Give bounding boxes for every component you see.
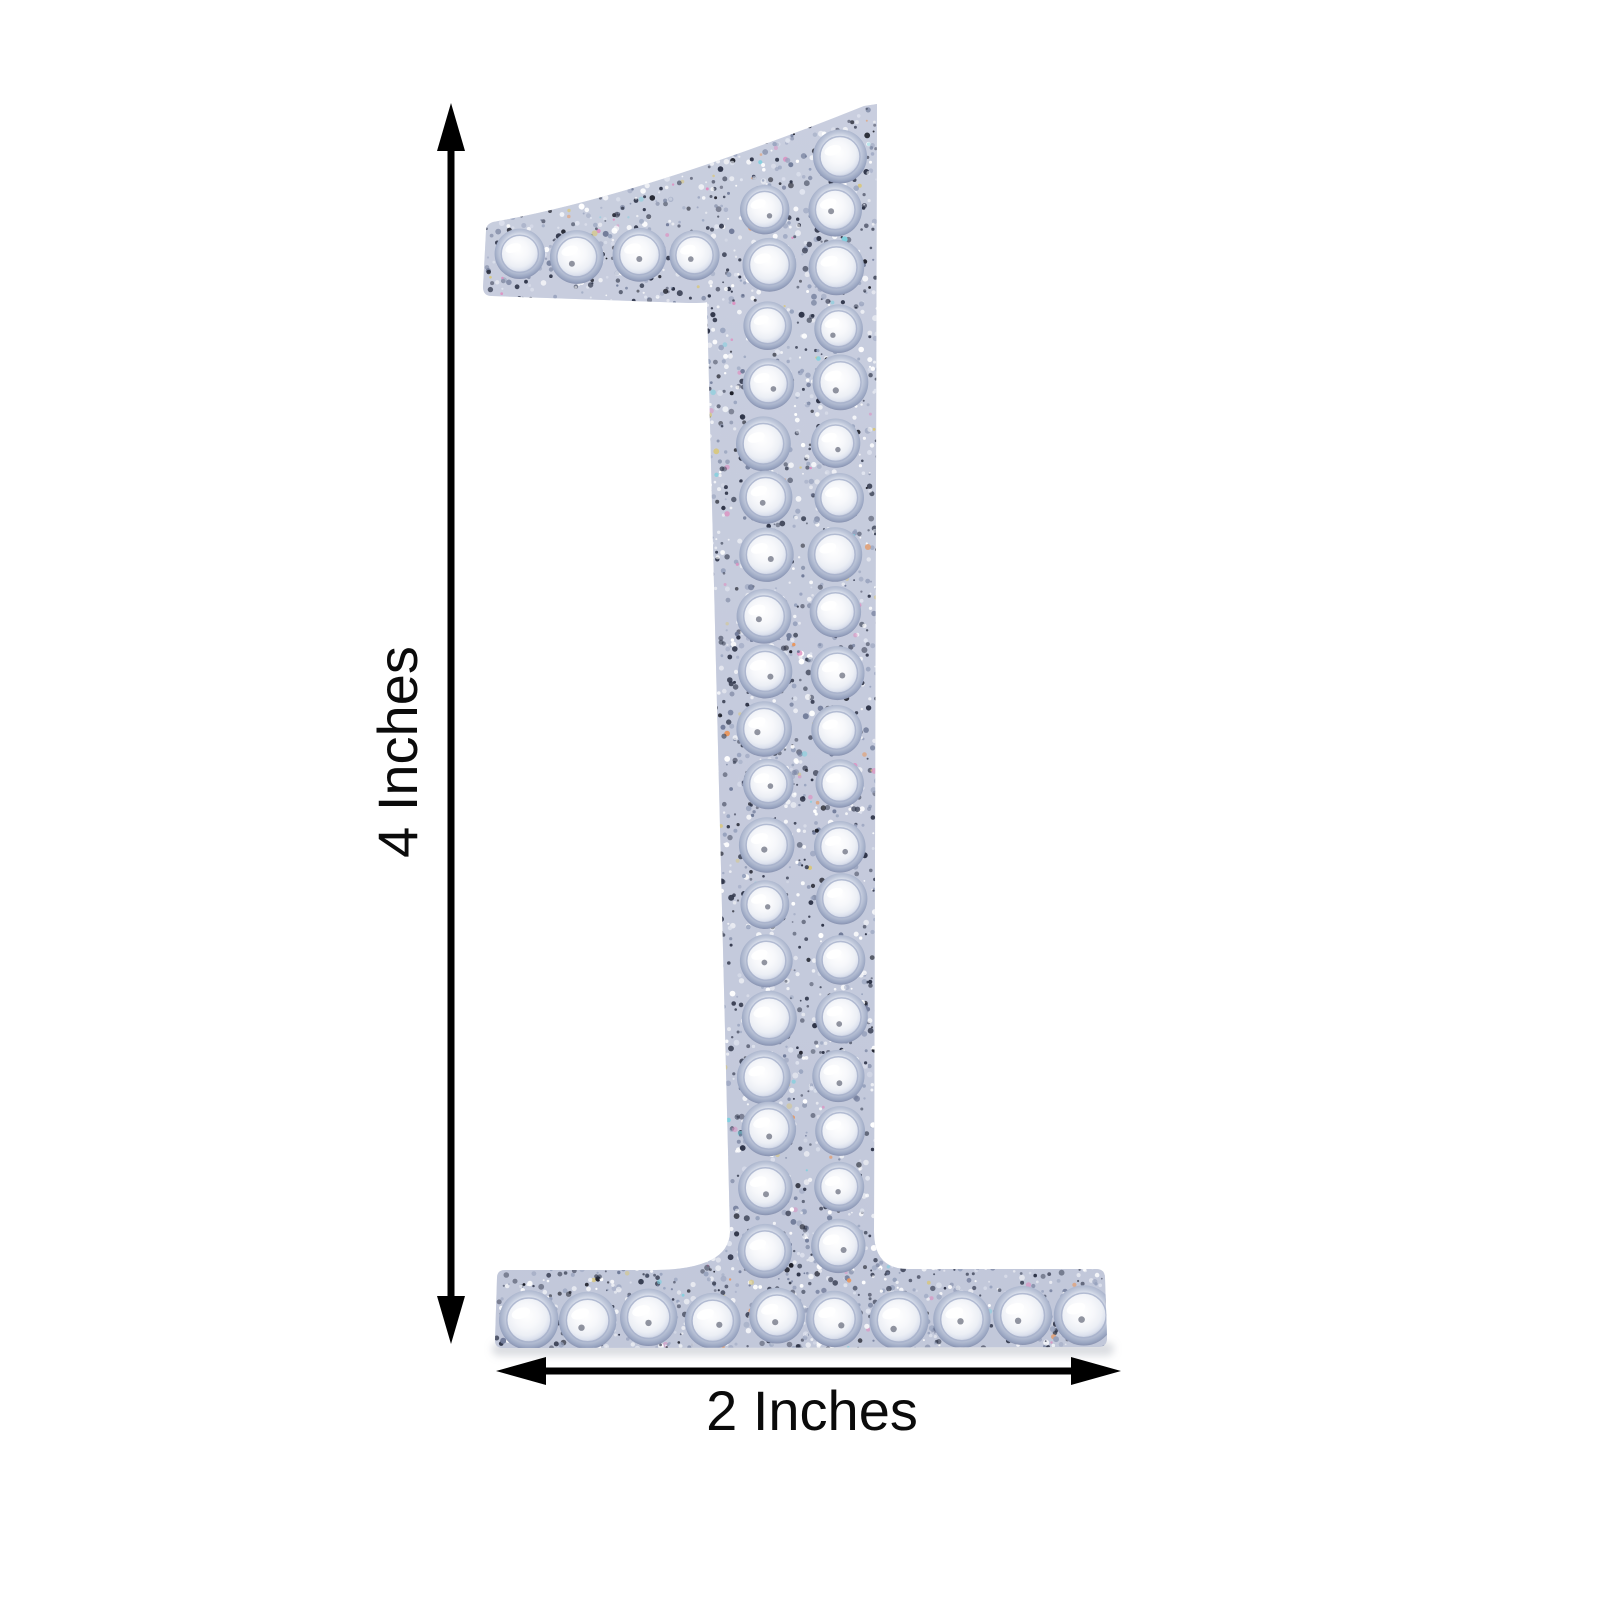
rhinestone xyxy=(742,1102,797,1157)
rhinestone xyxy=(685,1293,741,1349)
rhinestone xyxy=(814,1162,864,1212)
rhinestone xyxy=(559,1292,617,1350)
rhinestone xyxy=(815,1106,865,1156)
rhinestone xyxy=(743,301,792,350)
rhinestone xyxy=(620,1289,677,1346)
rhinestone xyxy=(740,934,793,987)
rhinestone xyxy=(738,1224,792,1278)
rhinestone xyxy=(806,1291,862,1347)
rhinestone xyxy=(816,873,867,924)
product-dimension-image: 4 Inches 2 Inches xyxy=(0,0,1600,1600)
rhinestone xyxy=(812,1050,864,1102)
rhinestone xyxy=(814,304,863,353)
rhinestone xyxy=(739,528,793,582)
rhinestone xyxy=(814,473,864,523)
rhinestone xyxy=(743,358,794,409)
rhinestone xyxy=(499,1290,559,1350)
rhinestone xyxy=(738,644,792,698)
rhinestone xyxy=(810,586,861,637)
rhinestone xyxy=(737,1050,791,1104)
rhinestone xyxy=(808,183,862,237)
product-image: 4 Inches 2 Inches xyxy=(0,0,1600,1600)
rhinestone xyxy=(811,705,862,756)
rhinestone xyxy=(741,880,790,929)
rhinestone xyxy=(1054,1285,1114,1345)
rhinestone xyxy=(813,355,869,411)
rhinestone xyxy=(815,991,867,1043)
rhinestone xyxy=(811,419,860,468)
rhinestone xyxy=(669,230,719,280)
rhinestone xyxy=(739,817,795,873)
rhinestone xyxy=(738,1161,793,1216)
rhinestone xyxy=(808,527,863,582)
rhinestone xyxy=(495,229,545,279)
rhinestone xyxy=(809,240,865,296)
rhinestone xyxy=(737,589,792,644)
rhinestone xyxy=(740,185,789,234)
height-dimension-label: 4 Inches xyxy=(366,646,429,858)
rhinestone xyxy=(814,821,866,873)
rhinestone xyxy=(739,471,792,524)
rhinestone xyxy=(613,228,667,282)
rhinestone xyxy=(736,416,791,471)
width-dimension-label: 2 Inches xyxy=(706,1379,918,1442)
rhinestone xyxy=(811,646,865,700)
rhinestone xyxy=(870,1291,929,1350)
rhinestone xyxy=(813,130,867,184)
rhinestone xyxy=(811,1219,865,1273)
rhinestone xyxy=(742,991,797,1046)
rhinestone xyxy=(933,1291,990,1348)
rhinestone xyxy=(993,1286,1052,1345)
rhinestone xyxy=(550,230,604,284)
rhinestone xyxy=(743,759,794,810)
rhinestone xyxy=(816,759,864,807)
rhinestone xyxy=(736,701,792,757)
rhinestone xyxy=(743,238,797,292)
rhinestone xyxy=(749,1288,805,1344)
rhinestone xyxy=(816,935,866,985)
